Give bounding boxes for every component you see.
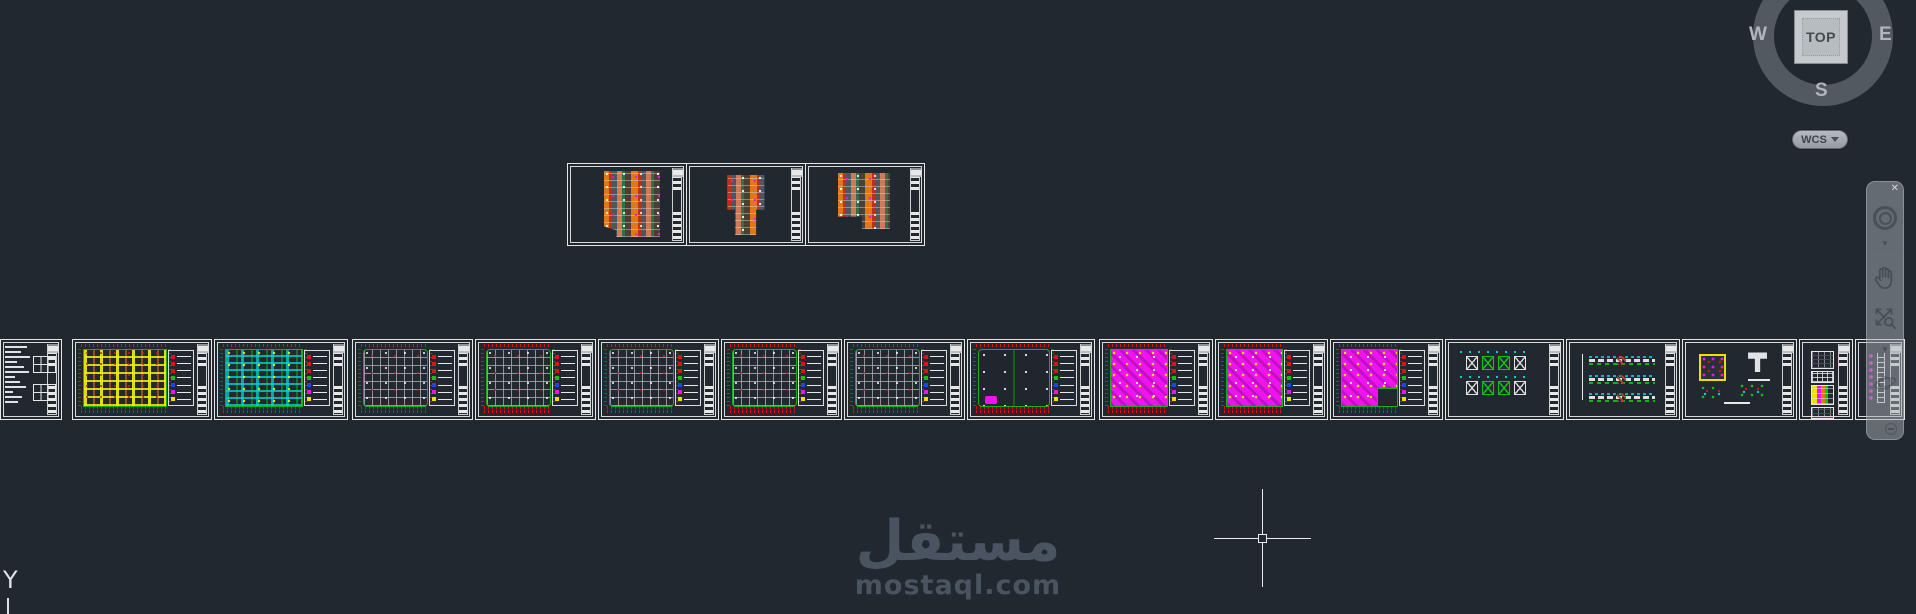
viewcube-south[interactable]: S xyxy=(1815,80,1828,102)
misc-details xyxy=(1693,349,1779,407)
wcs-dropdown[interactable]: WCS xyxy=(1792,130,1848,149)
legend-row xyxy=(432,384,452,387)
divider xyxy=(1872,254,1898,255)
schedule-table xyxy=(1811,385,1834,405)
yellow-detail-box xyxy=(1699,354,1726,381)
notes-text-bar xyxy=(5,381,20,383)
sheet-legend xyxy=(1051,350,1077,406)
legend-line xyxy=(1060,377,1074,378)
legend-row xyxy=(1172,369,1192,372)
legend-row xyxy=(1054,362,1074,365)
legend-row xyxy=(171,391,191,394)
structural-grid-plan xyxy=(855,349,920,407)
legend-swatch xyxy=(1287,362,1291,366)
legend-row xyxy=(432,362,452,365)
legend-line xyxy=(1060,370,1074,371)
legend-swatch xyxy=(678,397,682,401)
legend-row xyxy=(924,369,944,372)
legend-row xyxy=(432,398,452,401)
navigation-bar: ✕ ▾ ▾ xyxy=(1866,181,1904,440)
dimension-ticks-top xyxy=(1108,344,1168,347)
window-detail xyxy=(33,384,56,401)
dimension-ticks-bottom xyxy=(81,410,167,413)
architectural-plan xyxy=(723,175,769,235)
legend-line xyxy=(313,356,327,357)
drawing-sheet-arch-c[interactable] xyxy=(805,163,925,246)
legend-row xyxy=(1054,384,1074,387)
drawing-sheet-notes[interactable] xyxy=(0,339,62,420)
legend-line xyxy=(177,377,191,378)
dimension-ticks-left xyxy=(481,349,484,406)
legend-line xyxy=(684,356,698,357)
title-column xyxy=(791,168,801,241)
legend-line xyxy=(313,399,327,400)
sheet-titleblock-icon xyxy=(582,344,592,353)
legend-row xyxy=(678,391,698,394)
legend-swatch xyxy=(1172,369,1176,373)
legend-line xyxy=(1178,385,1192,386)
legend-swatch xyxy=(1287,355,1291,359)
legend-swatch xyxy=(1054,383,1058,387)
legend-line xyxy=(177,385,191,386)
sheet-legend xyxy=(675,350,701,406)
beam-elevation xyxy=(1589,356,1655,365)
legend-line xyxy=(177,392,191,393)
legend-swatch xyxy=(307,397,311,401)
legend-row xyxy=(555,355,575,358)
legend-row xyxy=(1172,355,1192,358)
legend-swatch xyxy=(307,355,311,359)
dimension-ticks-left xyxy=(973,349,976,406)
legend-line xyxy=(177,399,191,400)
legend-swatch xyxy=(1402,376,1406,380)
legend-line xyxy=(561,399,575,400)
legend-row xyxy=(924,362,944,365)
legend-swatch xyxy=(171,383,175,387)
legend-row xyxy=(924,376,944,379)
legend-line xyxy=(438,392,452,393)
dimension-ticks-left xyxy=(1336,349,1339,406)
xbrace-box xyxy=(1514,381,1526,395)
drawing-sheet-details[interactable] xyxy=(1682,339,1797,420)
dimension-ticks-top xyxy=(853,344,920,347)
legend-line xyxy=(930,392,944,393)
legend-row xyxy=(1054,376,1074,379)
sheet-titleblock-icon xyxy=(673,168,683,177)
legend-row xyxy=(924,398,944,401)
drawing-sheet-grid[interactable] xyxy=(721,339,842,420)
sheet-legend xyxy=(798,350,824,406)
legend-row xyxy=(801,355,821,358)
legend-swatch xyxy=(1054,362,1058,366)
legend-line xyxy=(313,377,327,378)
sheet-legend xyxy=(1399,350,1425,406)
xbrace-box xyxy=(1498,356,1510,370)
legend-line xyxy=(1408,370,1422,371)
sheet-legend xyxy=(552,350,578,406)
legend-swatch xyxy=(1287,369,1291,373)
viewcube-top-label: TOP xyxy=(1806,29,1836,45)
legend-swatch xyxy=(171,376,175,380)
legend-swatch xyxy=(1054,369,1058,373)
legend-line xyxy=(1178,399,1192,400)
legend-line xyxy=(1178,370,1192,371)
legend-line xyxy=(1408,377,1422,378)
dimension-ticks-bottom xyxy=(607,410,674,413)
legend-line xyxy=(1408,392,1422,393)
drawing-sheet-arch-a[interactable] xyxy=(567,163,687,246)
drawing-sheet-grid[interactable] xyxy=(352,339,473,420)
legend-swatch xyxy=(555,369,559,373)
title-column xyxy=(47,344,57,415)
legend-line xyxy=(684,385,698,386)
sheet-titleblock-icon xyxy=(1314,344,1324,353)
sheet-strip xyxy=(0,339,1916,420)
legend-line xyxy=(930,399,944,400)
sheet-legend xyxy=(1284,350,1310,406)
title-column xyxy=(581,344,591,415)
title-column xyxy=(333,344,343,415)
legend-line xyxy=(684,392,698,393)
legend-swatch xyxy=(555,362,559,366)
navigation-wheel-glyph xyxy=(1873,206,1897,230)
drawing-sheet-grid[interactable] xyxy=(475,339,596,420)
drawing-sheet-magenta[interactable] xyxy=(1215,339,1328,420)
legend-line xyxy=(1293,392,1307,393)
legend-line xyxy=(807,385,821,386)
zoom-icon[interactable] xyxy=(1867,304,1903,332)
drawing-sheet-beams[interactable] xyxy=(1566,339,1680,420)
sheet-legend xyxy=(304,350,330,406)
legend-line xyxy=(313,385,327,386)
title-column xyxy=(1549,344,1559,415)
legend-line xyxy=(1178,392,1192,393)
legend-row xyxy=(678,376,698,379)
legend-row xyxy=(171,355,191,358)
legend-row xyxy=(432,369,452,372)
dimension-ticks-left xyxy=(727,349,730,406)
title-column xyxy=(1838,344,1848,415)
dimension-ticks-bottom xyxy=(1339,410,1398,413)
drawing-canvas[interactable]: W E S TOP WCS ✕ ▾ xyxy=(0,0,1916,614)
zoom-glyph xyxy=(1871,304,1899,332)
xbrace-box xyxy=(1482,356,1494,370)
title-column xyxy=(672,168,682,241)
dimension-ticks-left xyxy=(358,349,361,406)
legend-swatch xyxy=(171,397,175,401)
magenta-blob xyxy=(985,396,997,404)
title-column xyxy=(827,344,837,415)
dimension-ticks-top xyxy=(1224,344,1283,347)
dimension-ticks-left xyxy=(1105,349,1108,406)
dimension-ticks-top xyxy=(976,344,1050,347)
legend-row xyxy=(678,355,698,358)
legend-line xyxy=(561,370,575,371)
caret-down-icon[interactable]: ▾ xyxy=(1867,238,1903,249)
legend-line xyxy=(807,399,821,400)
legend-swatch xyxy=(1402,355,1406,359)
sheet-titleblock-icon xyxy=(334,344,344,353)
legend-swatch xyxy=(432,397,436,401)
sheet-titleblock-icon xyxy=(1081,344,1091,353)
beam-elevation xyxy=(1589,375,1655,384)
legend-row xyxy=(307,376,327,379)
architectural-plan xyxy=(604,171,660,237)
legend-line xyxy=(1293,356,1307,357)
legend-line xyxy=(438,377,452,378)
notes-text-bar xyxy=(5,366,24,368)
sheet-titleblock-icon xyxy=(48,344,58,353)
legend-swatch xyxy=(801,355,805,359)
pan-hand-icon[interactable] xyxy=(1867,264,1903,294)
legend-row xyxy=(1287,362,1307,365)
plan-notch xyxy=(1377,388,1397,406)
legend-line xyxy=(1293,370,1307,371)
legend-swatch xyxy=(307,383,311,387)
title-column xyxy=(950,344,960,415)
title-column xyxy=(910,168,920,241)
viewcube-top-face[interactable]: TOP xyxy=(1794,10,1848,64)
orbit-icon[interactable] xyxy=(1867,370,1903,396)
xbrace-box xyxy=(1466,356,1478,370)
legend-line xyxy=(177,363,191,364)
legend-line xyxy=(1178,377,1192,378)
legend-swatch xyxy=(307,362,311,366)
legend-row xyxy=(801,384,821,387)
title-column xyxy=(1782,344,1792,415)
drawing-sheet-xbrace[interactable] xyxy=(1445,339,1564,420)
dimension-ticks-left xyxy=(1221,349,1224,406)
legend-swatch xyxy=(1172,355,1176,359)
legend-row xyxy=(1402,391,1422,394)
legend-swatch xyxy=(307,376,311,380)
legend-row xyxy=(307,398,327,401)
legend-swatch xyxy=(555,383,559,387)
legend-line xyxy=(1408,363,1422,364)
wcs-label: WCS xyxy=(1801,134,1827,146)
legend-line xyxy=(313,363,327,364)
legend-row xyxy=(801,369,821,372)
sheet-titleblock-icon xyxy=(1429,344,1439,353)
title-column xyxy=(458,344,468,415)
structural-grid-plan xyxy=(486,349,551,407)
legend-line xyxy=(930,370,944,371)
legend-row xyxy=(171,384,191,387)
legend-row xyxy=(1172,398,1192,401)
section-line xyxy=(1582,354,1583,400)
ucs-y-axis-line xyxy=(7,598,9,614)
legend-swatch xyxy=(924,355,928,359)
legend-swatch xyxy=(1287,390,1291,394)
legend-row xyxy=(1054,355,1074,358)
legend-swatch xyxy=(171,369,175,373)
sheet-titleblock-icon xyxy=(1550,344,1560,353)
legend-swatch xyxy=(307,390,311,394)
drawing-sheet-tables[interactable] xyxy=(1799,339,1853,420)
legend-line xyxy=(930,363,944,364)
legend-row xyxy=(924,384,944,387)
legend-swatch xyxy=(432,362,436,366)
viewcube-west[interactable]: W xyxy=(1749,24,1767,46)
dimension-ticks-top xyxy=(607,344,674,347)
title-column xyxy=(704,344,714,415)
legend-row xyxy=(1402,362,1422,365)
dimension-ticks-top xyxy=(223,344,303,347)
legend-swatch xyxy=(1172,362,1176,366)
notes-text-bar xyxy=(5,386,26,388)
legend-row xyxy=(1287,355,1307,358)
drawing-sheet-plan-yellow[interactable] xyxy=(72,339,212,420)
notes-text-bar xyxy=(5,376,15,378)
pan-hand-glyph xyxy=(1872,264,1898,294)
legend-row xyxy=(1402,376,1422,379)
dimension-ticks-top xyxy=(81,344,167,347)
legend-row xyxy=(555,398,575,401)
legend-line xyxy=(438,399,452,400)
t-section-detail xyxy=(1748,352,1767,372)
dimension-ticks-bottom xyxy=(361,410,428,413)
sheet-legend xyxy=(921,350,947,406)
legend-swatch xyxy=(801,390,805,394)
dimension-ticks-left xyxy=(604,349,607,406)
legend-swatch xyxy=(1054,397,1058,401)
sheet-legend xyxy=(168,350,194,406)
legend-line xyxy=(313,370,327,371)
legend-row xyxy=(1172,391,1192,394)
title-column xyxy=(1080,344,1090,415)
dimension-ticks-bottom xyxy=(1224,410,1283,413)
legend-swatch xyxy=(432,369,436,373)
sheet-legend xyxy=(429,350,455,406)
xbrace-row xyxy=(1464,356,1528,370)
legend-swatch xyxy=(678,362,682,366)
architectural-plan xyxy=(838,173,890,229)
legend-swatch xyxy=(432,383,436,387)
legend-swatch xyxy=(171,362,175,366)
legend-row xyxy=(1054,391,1074,394)
notes-text-bar xyxy=(5,401,18,403)
legend-swatch xyxy=(555,355,559,359)
legend-row xyxy=(1172,384,1192,387)
viewcube-east[interactable]: E xyxy=(1879,24,1892,46)
legend-swatch xyxy=(555,376,559,380)
notes-text-bar xyxy=(5,346,27,348)
dimension-ticks-top xyxy=(1339,344,1398,347)
legend-row xyxy=(1172,376,1192,379)
legend-row xyxy=(307,384,327,387)
legend-line xyxy=(561,356,575,357)
legend-swatch xyxy=(1402,383,1406,387)
detail-cluster xyxy=(1739,383,1765,398)
legend-row xyxy=(555,384,575,387)
dimension-ticks-top xyxy=(730,344,797,347)
notes-text-bar xyxy=(5,391,13,393)
legend-row xyxy=(1287,384,1307,387)
schedule-tables xyxy=(1810,349,1835,407)
watermark-arabic: مستقل xyxy=(0,514,1916,570)
drawing-sheet-plan-cyan[interactable] xyxy=(214,339,348,420)
slab-reinforcement-plan xyxy=(1226,349,1283,407)
slab-reinforcement-plan xyxy=(1110,349,1168,407)
drawing-sheet-magenta[interactable] xyxy=(1330,339,1443,420)
legend-swatch xyxy=(1172,383,1176,387)
legend-line xyxy=(807,370,821,371)
legend-row xyxy=(801,391,821,394)
legend-swatch xyxy=(924,362,928,366)
legend-swatch xyxy=(307,369,311,373)
legend-row xyxy=(1054,369,1074,372)
drawing-sheet-grid[interactable] xyxy=(598,339,719,420)
legend-row xyxy=(432,376,452,379)
drawing-sheet-grid[interactable] xyxy=(844,339,965,420)
collapse-minus-icon[interactable] xyxy=(1885,423,1897,435)
structural-grid-plan xyxy=(363,349,428,407)
legend-line xyxy=(438,370,452,371)
dimension-ticks-top xyxy=(484,344,551,347)
legend-line xyxy=(1293,377,1307,378)
dimension-ticks-left xyxy=(78,349,81,406)
legend-row xyxy=(1287,391,1307,394)
close-icon[interactable]: ✕ xyxy=(1891,183,1899,194)
divider xyxy=(1872,360,1898,361)
title-column xyxy=(1665,344,1675,415)
navigation-wheel-icon[interactable] xyxy=(1867,206,1903,230)
legend-row xyxy=(678,362,698,365)
caret-down-icon[interactable]: ▾ xyxy=(1867,344,1903,355)
drawing-sheet-sparse[interactable] xyxy=(967,339,1095,420)
sheet-titleblock-icon xyxy=(828,344,838,353)
legend-row xyxy=(801,398,821,401)
legend-swatch xyxy=(924,376,928,380)
structural-grid-plan xyxy=(732,349,797,407)
dimension-ticks-bottom xyxy=(484,410,551,413)
orbit-glyph xyxy=(1872,370,1898,396)
legend-row xyxy=(171,362,191,365)
legend-swatch xyxy=(801,376,805,380)
legend-row xyxy=(307,355,327,358)
title-column xyxy=(197,344,207,415)
drawing-sheet-arch-b[interactable] xyxy=(686,163,806,246)
notes-text-bar xyxy=(5,361,17,363)
watermark-latin: mostaql.com xyxy=(0,572,1916,599)
legend-line xyxy=(561,392,575,393)
legend-swatch xyxy=(432,376,436,380)
legend-line xyxy=(561,377,575,378)
xbrace-box xyxy=(1482,381,1494,395)
legend-line xyxy=(1060,392,1074,393)
legend-line xyxy=(1408,385,1422,386)
dimension-bar xyxy=(1748,379,1770,381)
legend-swatch xyxy=(678,355,682,359)
slab-reinforcement-plan xyxy=(1341,349,1398,407)
legend-swatch xyxy=(1287,383,1291,387)
legend-line xyxy=(438,385,452,386)
legend-row xyxy=(1172,362,1192,365)
notes-text-bar xyxy=(5,356,30,358)
drawing-sheet-magenta[interactable] xyxy=(1099,339,1213,420)
legend-row xyxy=(678,369,698,372)
legend-swatch xyxy=(924,369,928,373)
legend-row xyxy=(1402,384,1422,387)
legend-row xyxy=(1402,369,1422,372)
dimension-ticks-left xyxy=(220,349,223,406)
dimension-ticks-bottom xyxy=(976,410,1050,413)
legend-line xyxy=(1408,356,1422,357)
legend-swatch xyxy=(1054,355,1058,359)
legend-swatch xyxy=(1287,376,1291,380)
legend-swatch xyxy=(432,390,436,394)
legend-swatch xyxy=(1172,390,1176,394)
